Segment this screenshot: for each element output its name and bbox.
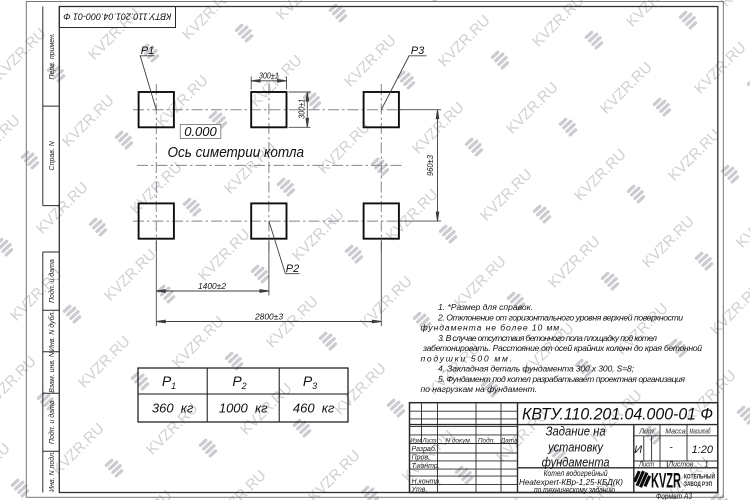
svg-text:Лист: Лист	[422, 437, 437, 444]
svg-text:КОТЕЛЬНЫЙ: КОТЕЛЬНЫЙ	[684, 472, 715, 481]
svg-text:Подп. и дата: Подп. и дата	[48, 259, 56, 303]
svg-text:Изм: Изм	[410, 437, 421, 444]
svg-text:по техническому заданию: по техническому заданию	[534, 485, 615, 494]
svg-text:P1: P1	[141, 45, 154, 57]
svg-text:Пров.: Пров.	[412, 455, 431, 462]
svg-text:300±1: 300±1	[297, 99, 307, 119]
svg-text:Листов: Листов	[667, 461, 693, 468]
svg-text:Утв.: Утв.	[411, 487, 428, 494]
svg-text:3. В случае отсутствия бетонн: 3. В случае отсутствия бетонного пола пл…	[438, 333, 657, 343]
svg-text:0.000: 0.000	[184, 124, 217, 139]
svg-text:КВТУ.110.201.04.000-01 Ф: КВТУ.110.201.04.000-01 Ф	[522, 404, 713, 423]
svg-text:Т.контр.: Т.контр.	[412, 463, 440, 470]
svg-text:460 кг: 460 кг	[293, 401, 335, 416]
svg-text:1: 1	[704, 461, 708, 468]
svg-text:фундамента: фундамента	[542, 454, 610, 469]
svg-text:Котел водогрейный: Котел водогрейный	[544, 469, 608, 478]
svg-text:P1: P1	[162, 373, 176, 391]
svg-text:Н.контр.: Н.контр.	[412, 479, 442, 486]
svg-text:KVZR: KVZR	[651, 470, 681, 493]
svg-text:P3: P3	[411, 45, 425, 57]
svg-text:Дата: Дата	[500, 437, 519, 444]
svg-text:Подп.: Подп.	[478, 436, 495, 444]
svg-text:ЗАВОД РЭП: ЗАВОД РЭП	[684, 481, 712, 488]
svg-text:960±3: 960±3	[425, 155, 435, 176]
svg-text:4. Закладная деталь фундамент: 4. Закладная деталь фундамента 300 х 300…	[438, 364, 635, 374]
svg-text:1. *Размер для справок.: 1. *Размер для справок.	[438, 302, 533, 312]
svg-text:по нагрузкам на фундамент.: по нагрузкам на фундамент.	[421, 384, 538, 394]
svg-text:1000 кг: 1000 кг	[219, 401, 268, 416]
svg-text:P2: P2	[232, 373, 246, 391]
svg-text:Масса: Масса	[665, 428, 686, 435]
svg-text:Подп. и дата: Подп. и дата	[48, 400, 56, 444]
svg-text:Задание на: Задание на	[546, 424, 606, 439]
svg-text:КВТУ.110.201.04.000-01 Ф: КВТУ.110.201.04.000-01 Ф	[63, 10, 171, 21]
svg-text:И: И	[634, 444, 642, 456]
svg-text:1400±2: 1400±2	[198, 281, 226, 291]
svg-text:P2: P2	[286, 263, 299, 275]
svg-text:2800±3: 2800±3	[254, 312, 283, 322]
svg-text:Инв. N подл.: Инв. N подл.	[48, 451, 56, 492]
svg-text:P3: P3	[303, 373, 317, 391]
svg-text:Лист: Лист	[638, 461, 654, 468]
svg-text:-: -	[669, 443, 673, 454]
svg-text:фундамента не более 10 мм.: фундамента не более 10 мм.	[421, 323, 563, 333]
svg-text:Инв. N дубл.: Инв. N дубл.	[48, 311, 56, 352]
svg-text:2. Отклонение от горизонтальн: 2. Отклонение от горизонтального уровня …	[437, 312, 683, 322]
svg-text:300±1: 300±1	[259, 71, 279, 81]
svg-text:Ось симетрии котла: Ось симетрии котла	[168, 145, 305, 161]
svg-text:N докум.: N докум.	[445, 436, 471, 444]
svg-text:5. Фундамент под котел разраб: 5. Фундамент под котел разрабатывает про…	[438, 374, 685, 384]
svg-text:подушки 500 мм.: подушки 500 мм.	[421, 353, 513, 363]
svg-text:Взам. инв. N: Взам. инв. N	[49, 351, 56, 393]
svg-text:Формат А3: Формат А3	[656, 491, 692, 500]
svg-text:забетонировать. Расстояние от: забетонировать. Расстояние от осей крайн…	[422, 343, 702, 353]
svg-text:Масштаб: Масштаб	[690, 427, 712, 435]
svg-text:установку: установку	[547, 439, 604, 454]
svg-text:Перв. примен.: Перв. примен.	[49, 33, 56, 80]
svg-text:360 кг: 360 кг	[152, 401, 194, 416]
svg-text:Разраб.: Разраб.	[412, 445, 437, 453]
svg-text:Справ. N: Справ. N	[49, 140, 56, 170]
svg-text:Лит.: Лит.	[638, 428, 655, 435]
svg-text:1:20: 1:20	[692, 444, 714, 456]
